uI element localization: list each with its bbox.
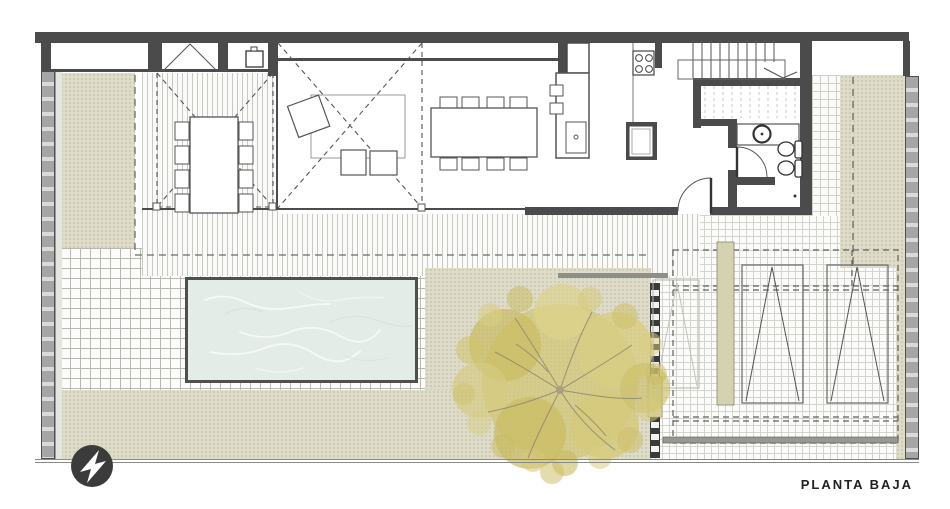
pergola-post-marker: [269, 203, 276, 210]
ottoman: [370, 151, 397, 175]
site-boundary-bottom: [35, 460, 919, 463]
bathroom: [737, 124, 802, 198]
entry-door-swing: [678, 178, 711, 211]
plan-title: PLANTA BAJA: [801, 477, 913, 492]
outdoor-dining-set: [175, 117, 253, 213]
staircase: [678, 40, 797, 79]
pool-water-texture: [205, 292, 412, 372]
chair: [487, 97, 504, 109]
carport-overhang-dashes: [673, 250, 898, 443]
deck-step: [558, 273, 668, 278]
chair: [175, 170, 189, 188]
parking-marker-2: [831, 267, 884, 401]
pergola-post-marker: [418, 204, 425, 211]
entry-door: [678, 178, 711, 213]
fireplace-vent-triangle: [163, 44, 217, 71]
bar-stool: [550, 85, 563, 96]
armchair: [287, 95, 329, 137]
living-room-furniture: [287, 95, 405, 175]
chair: [487, 158, 504, 170]
chair: [175, 146, 189, 164]
chair: [510, 158, 527, 170]
parking-marker-1: [746, 267, 799, 401]
stair-direction-arrow-icon: [764, 68, 797, 78]
bar-stool: [550, 103, 563, 114]
floor-plan-canvas: PLANTA BAJA: [0, 0, 950, 509]
chair: [175, 194, 189, 212]
burner: [636, 55, 643, 62]
gate-bar: [663, 437, 898, 443]
stair-rail: [678, 60, 785, 79]
burner: [646, 55, 653, 62]
burner: [636, 66, 643, 73]
ottoman: [341, 150, 366, 175]
shower-drain: [794, 195, 797, 198]
chair: [239, 170, 253, 188]
dining-table: [431, 108, 537, 157]
kitchen: [550, 43, 657, 160]
chair: [510, 97, 527, 109]
chair: [239, 194, 253, 212]
tree-icon: [452, 284, 670, 484]
closet-shelving-hatch: [705, 86, 795, 118]
plan-linework: [0, 0, 950, 509]
sink-drain: [761, 133, 764, 136]
oven: [629, 126, 653, 157]
island-sink: [566, 122, 586, 153]
pergola-post-marker: [153, 203, 160, 210]
chair: [462, 158, 479, 170]
bidet: [778, 160, 802, 177]
chair: [175, 122, 189, 140]
chair: [239, 146, 253, 164]
carport: [648, 242, 898, 443]
tree-trunk: [556, 386, 564, 394]
chair: [440, 158, 457, 170]
toilet: [778, 141, 802, 158]
refrigerator: [567, 43, 589, 73]
bbq-grill: [246, 47, 263, 67]
bathroom-door-swing: [737, 147, 767, 177]
chair: [462, 97, 479, 109]
planter-strip: [717, 242, 734, 405]
dining-set: [431, 97, 537, 170]
chair: [239, 122, 253, 140]
outdoor-table: [190, 117, 238, 213]
burner: [646, 66, 653, 73]
north-arrow-icon: [71, 445, 113, 487]
chair: [440, 97, 457, 109]
